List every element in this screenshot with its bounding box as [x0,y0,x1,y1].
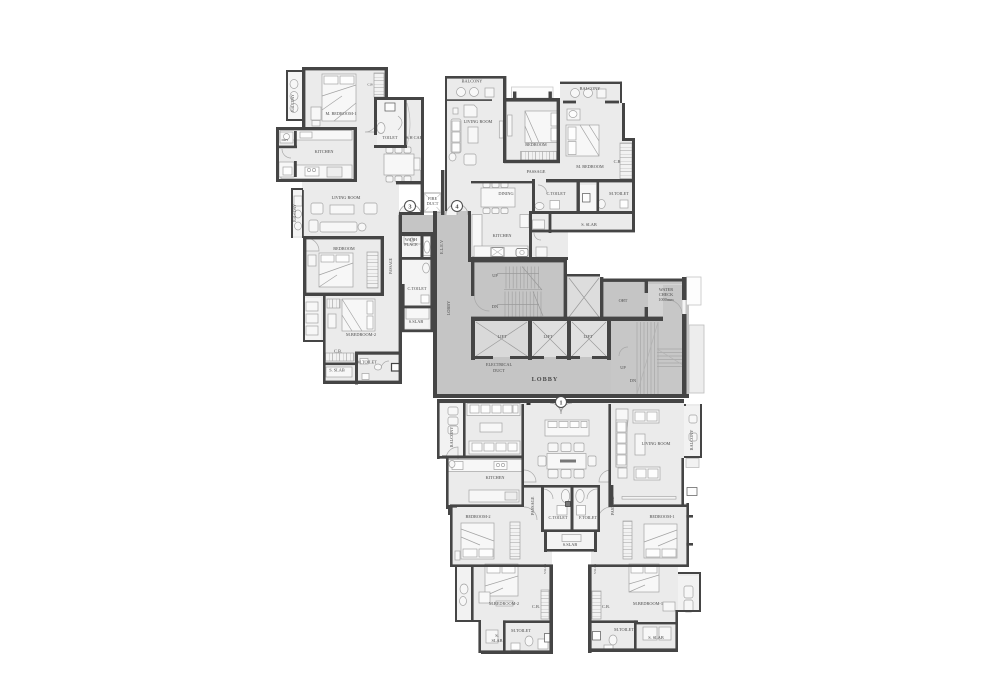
svg-text:M.BEDROOM-2: M.BEDROOM-2 [346,332,376,337]
svg-text:C.TOILET: C.TOILET [549,515,568,520]
svg-text:DRY: DRY [282,138,290,142]
svg-text:M.TOILET: M.TOILET [511,628,531,633]
svg-text:KITCHEN: KITCHEN [486,475,505,480]
svg-text:LIVING ROOM: LIVING ROOM [642,441,671,446]
svg-text:LIVING ROOM: LIVING ROOM [332,195,361,200]
svg-text:KITCHEN: KITCHEN [315,149,334,154]
svg-text:C.TOILET: C.TOILET [408,286,427,291]
svg-text:LIFT: LIFT [543,334,552,339]
svg-text:C.B: C.B [367,83,373,87]
svg-text:PLACE: PLACE [404,242,418,247]
svg-text:C.B.: C.B. [334,349,342,354]
svg-text:PASSAGE: PASSAGE [389,257,393,273]
svg-text:PASSAGE: PASSAGE [530,496,535,515]
svg-text:M.TOILET: M.TOILET [614,627,634,632]
svg-text:BALCONY: BALCONY [293,204,297,222]
svg-text:M.TOILET: M.TOILET [609,191,629,196]
svg-text:DUCT: DUCT [493,368,505,373]
svg-text:1000mm: 1000mm [658,297,674,302]
svg-text:S.SLAB: S.SLAB [409,319,424,324]
svg-text:BEDROOM-2: BEDROOM-2 [465,514,490,519]
svg-text:KITCHEN: KITCHEN [493,233,512,238]
svg-text:F.TOILET: F.TOILET [579,515,597,520]
svg-text:M.BEDROOM-2: M.BEDROOM-2 [489,601,519,606]
svg-text:PASSAGE: PASSAGE [527,169,546,174]
svg-text:UP: UP [620,365,626,370]
svg-text:M.TOILET: M.TOILET [357,360,377,365]
svg-text:ELECTRICAL: ELECTRICAL [486,362,513,367]
svg-text:S.H CAP: S.H CAP [406,135,423,140]
svg-text:M. BEDROOM-1: M. BEDROOM-1 [325,111,356,116]
svg-text:C.B: C.B [614,159,621,164]
svg-text:DINING: DINING [498,191,513,196]
svg-text:PASSAGE: PASSAGE [610,496,615,515]
svg-text:S.SLAB: S.SLAB [543,564,547,574]
svg-text:M. BEDROOM: M. BEDROOM [576,164,604,169]
svg-text:LIFT: LIFT [583,334,592,339]
svg-text:BEDROOM: BEDROOM [333,246,355,251]
svg-text:S. SLAB: S. SLAB [648,635,664,640]
svg-text:OHT: OHT [619,298,628,303]
svg-text:BALCONY: BALCONY [462,79,483,84]
svg-text:E.L.E.V: E.L.E.V [439,239,444,254]
svg-text:1: 1 [559,400,562,407]
svg-text:LIVING ROOM: LIVING ROOM [464,119,493,124]
svg-text:DN: DN [630,378,636,383]
svg-text:UP: UP [492,273,498,278]
svg-text:BALCONY: BALCONY [449,427,454,448]
svg-text:LOBBY: LOBBY [532,376,559,383]
svg-text:C.B.: C.B. [602,604,610,609]
svg-text:S. SLAB: S. SLAB [581,222,597,227]
svg-text:S.SLAB: S.SLAB [563,542,578,547]
svg-text:BEDROOM-1: BEDROOM-1 [649,514,674,519]
svg-text:C.B.: C.B. [532,604,540,609]
svg-text:M.BEDROOM-1: M.BEDROOM-1 [633,601,663,606]
svg-text:S. SLAB: S. SLAB [329,368,345,373]
svg-text:BALCONY: BALCONY [580,86,601,91]
svg-text:LOBBY: LOBBY [446,301,451,316]
svg-text:SLAB: SLAB [492,638,503,643]
svg-text:S.SLAB: S.SLAB [593,564,597,574]
svg-text:DN: DN [492,304,498,309]
svg-text:BALCONY: BALCONY [689,430,694,451]
svg-text:LIFT: LIFT [497,334,506,339]
svg-text:BALCONY: BALCONY [291,94,295,112]
svg-text:C.TOILET: C.TOILET [547,191,566,196]
svg-text:BEDROOM: BEDROOM [525,142,547,147]
svg-text:DUCT: DUCT [427,201,439,206]
svg-text:TOILET: TOILET [383,135,398,140]
